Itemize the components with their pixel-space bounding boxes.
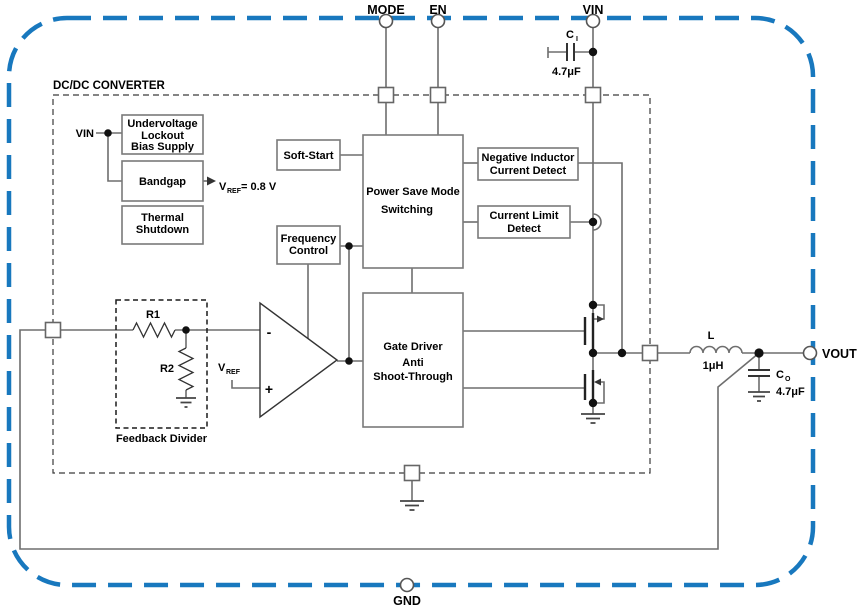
opamp-noninverting-input: + [265, 381, 273, 397]
pad-vin [586, 88, 601, 103]
wire-lowside-body [593, 382, 604, 414]
co-value: 4.7μF [776, 386, 805, 398]
r2-label: R2 [160, 363, 174, 375]
gatedriver-line2: Anti [402, 357, 423, 369]
thermal-line2: Shutdown [136, 224, 189, 236]
pin-label-mode: MODE [367, 3, 405, 17]
thermal-line1: Thermal [141, 212, 184, 224]
soft-start-label: Soft-Start [283, 150, 333, 162]
junction-dot [345, 357, 353, 365]
pin-label-vout: VOUT [822, 347, 857, 361]
block-power-save-mode [363, 135, 463, 268]
psm-line2: Switching [381, 204, 433, 216]
junction-dot [589, 218, 597, 226]
wire-input-cap [548, 47, 593, 58]
resistor-r2 [179, 348, 193, 390]
currentlimit-line1: Current Limit [489, 210, 558, 222]
ground-pad [400, 501, 424, 510]
junction-dot [345, 242, 353, 250]
capacitor-ci [567, 43, 574, 61]
junction-dot [589, 301, 597, 309]
junction-dot [182, 326, 190, 334]
pin-label-gnd: GND [393, 594, 421, 608]
junction-dot [618, 349, 626, 357]
co-symbol: C [776, 369, 784, 381]
gatedriver-line3: Shoot-Through [373, 371, 453, 383]
ci-symbol: C [566, 29, 574, 41]
feedback-divider-label: Feedback Divider [116, 433, 208, 445]
opamp-inverting-input: - [267, 324, 272, 340]
vref2-symbol: V [218, 362, 226, 374]
inductor-value: 1μH [703, 360, 724, 372]
junction-dot [589, 399, 597, 407]
wire-freq-psm [340, 246, 363, 361]
dcdc-converter-block-diagram: DC/DC CONVERTER MODE EN VIN VOUT GND Und… [0, 0, 862, 610]
junction-dot [589, 349, 597, 357]
junction-dot [589, 48, 597, 56]
co-subscript: O [785, 376, 791, 383]
vref-subscript: REF [227, 188, 242, 195]
vin-internal-label: VIN [76, 128, 94, 140]
pin-vout [804, 347, 817, 360]
uvlo-line1: Undervoltage [127, 118, 197, 130]
freq-line2: Control [289, 245, 328, 257]
psm-line1: Power Save Mode [366, 186, 460, 198]
resistor-r1 [133, 323, 175, 337]
ci-value: 4.7μF [552, 66, 581, 78]
vref-value: = 0.8 V [241, 181, 277, 193]
capacitor-co [748, 370, 770, 376]
ci-subscript: I [576, 36, 578, 43]
gatedriver-line1: Gate Driver [383, 341, 443, 353]
lowside-fet-arrow [594, 379, 601, 386]
pad-sw [643, 346, 658, 361]
wire-vref-plus [232, 380, 260, 388]
uvlo-line3: Bias Supply [131, 141, 195, 153]
ground-r2 [176, 398, 196, 407]
pad-en [431, 88, 446, 103]
negdetect-line1: Negative Inductor [482, 152, 576, 164]
inductor-l [690, 347, 742, 354]
pin-label-vin: VIN [583, 3, 604, 17]
vref-arrow [207, 177, 216, 186]
vref2-subscript: REF [226, 369, 241, 376]
pad-mode [379, 88, 394, 103]
junction-dot [754, 348, 763, 357]
highside-fet-arrow [597, 316, 604, 323]
pin-gnd [401, 579, 414, 592]
pad-gnd [405, 466, 420, 481]
junction-dot [104, 129, 112, 137]
inductor-symbol: L [708, 330, 715, 342]
ground-output-cap [748, 392, 770, 401]
pad-fb [46, 323, 61, 338]
vref-symbol: V [219, 181, 227, 193]
ground-lowside-fet [581, 414, 605, 423]
currentlimit-line2: Detect [507, 223, 541, 235]
pin-label-en: EN [429, 3, 446, 17]
r1-label: R1 [146, 309, 160, 321]
wire-vin-internal [96, 133, 122, 181]
bandgap-label: Bandgap [139, 176, 186, 188]
negdetect-line2: Current Detect [490, 165, 567, 177]
schematic-canvas: DC/DC CONVERTER MODE EN VIN VOUT GND Und… [0, 0, 862, 610]
freq-line1: Frequency [281, 233, 338, 245]
error-amplifier [260, 303, 337, 417]
diagram-title: DC/DC CONVERTER [53, 80, 166, 92]
